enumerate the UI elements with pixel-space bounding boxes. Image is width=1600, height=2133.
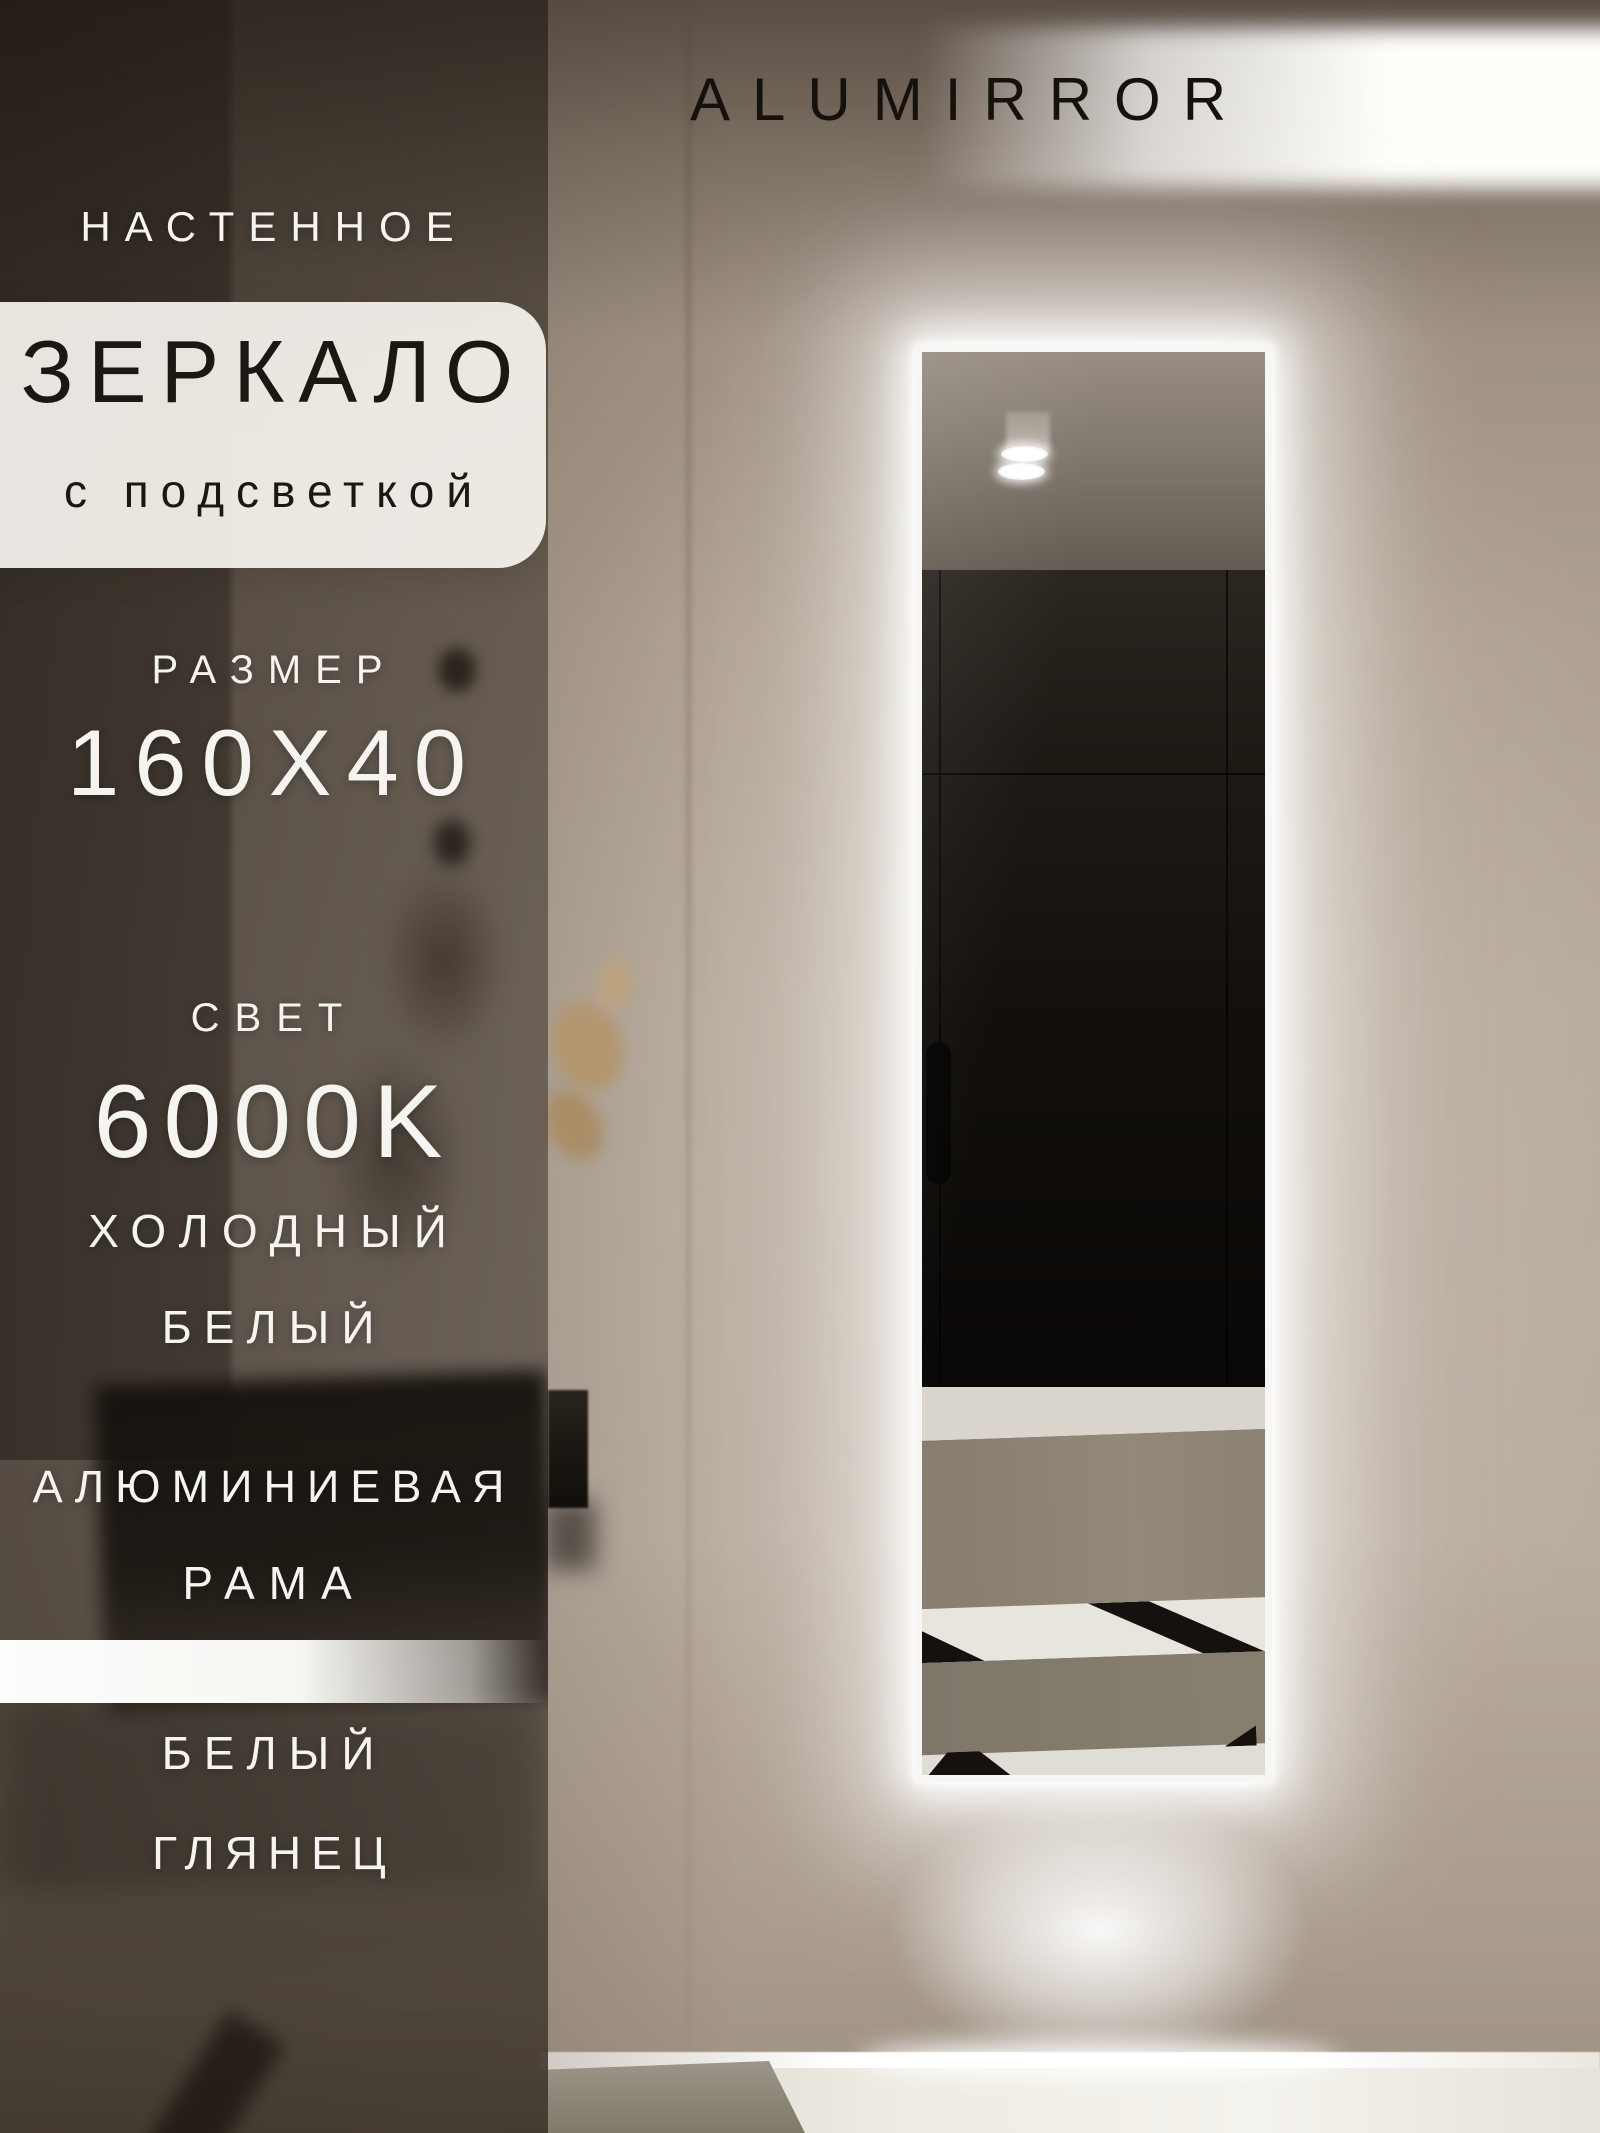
product-subtitle: с подсветкой [0, 468, 548, 514]
title-card: ЗЕРКАЛО с подсветкой [0, 302, 546, 568]
finish-line1: БЕЛЫЙ [0, 1730, 548, 1776]
console-shadow [544, 1500, 596, 1570]
size-label: РАЗМЕР [0, 650, 548, 690]
light-label: СВЕТ [0, 998, 548, 1038]
light-tone-line2: БЕЛЫЙ [0, 1304, 548, 1350]
frame-material-line1: АЛЮМИНИЕВАЯ [0, 1464, 548, 1509]
light-tone-line1: ХОЛОДНЫЙ [0, 1208, 548, 1254]
info-overlay-strip: НАСТЕННОЕ ЗЕРКАЛО с подсветкой РАЗМЕР 16… [0, 0, 548, 2133]
product-card-image: НАСТЕННОЕ ЗЕРКАЛО с подсветкой РАЗМЕР 16… [0, 0, 1600, 2133]
floor-stone-tile [505, 2061, 805, 2133]
mirror-bottom-glow [815, 1745, 1385, 2115]
mirror-sheen [922, 352, 1265, 1775]
frame-material-line2: РАМА [0, 1560, 548, 1606]
finish-line2: ГЛЯНЕЦ [0, 1830, 548, 1876]
divider-band [0, 1640, 546, 1703]
size-value: 160X40 [0, 716, 548, 810]
kicker-text: НАСТЕННОЕ [0, 206, 548, 248]
brand-logo: ALUMIRROR [690, 70, 1246, 130]
mirror-reflection [922, 352, 1265, 1775]
product-title: ЗЕРКАЛО [0, 328, 548, 416]
light-temperature-value: 6000K [0, 1070, 548, 1174]
wall-corner-shadow [686, 0, 691, 2058]
console-drawer [548, 1390, 588, 1508]
led-mirror [915, 345, 1272, 1782]
